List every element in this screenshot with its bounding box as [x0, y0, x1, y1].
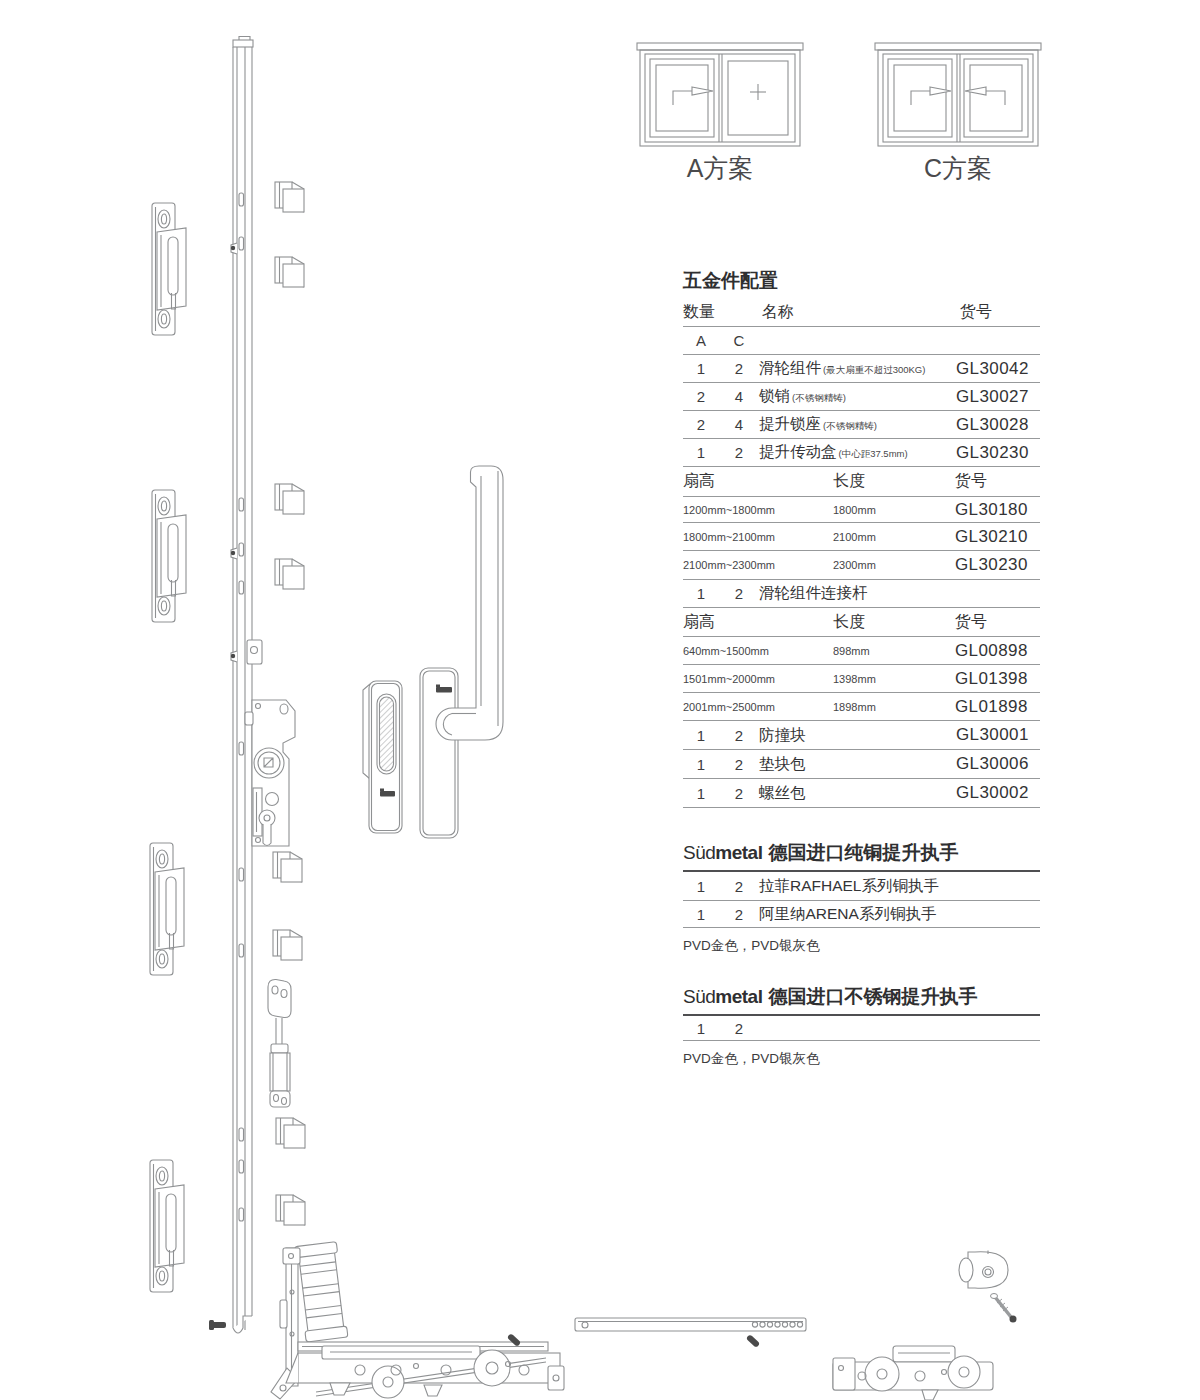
- qty-a: 2: [683, 416, 719, 433]
- table-row: 1 2 垫块包 GL30006: [683, 750, 1040, 779]
- part-name: 螺丝包: [759, 783, 956, 804]
- qty-c: 2: [719, 756, 759, 773]
- col-name: 名称: [762, 302, 960, 323]
- finish-options: PVD金色，PVD银灰色: [683, 937, 1040, 955]
- sash-range: 2100mm~2300mm: [683, 559, 833, 571]
- arrow-right-icon: [673, 87, 713, 105]
- scheme-c-diagram: [875, 43, 1041, 146]
- steel-handle-section: Südmetal德国进口不锈钢提升执手 1 2 PVD金色，PVD银灰色: [683, 984, 1040, 1068]
- table-row: 1 2 阿里纳ARENA系列铜执手: [683, 901, 1040, 928]
- part-name: 垫块包: [759, 754, 956, 775]
- qty-a: 2: [683, 388, 719, 405]
- col-length: 长度: [833, 612, 955, 633]
- part-code: GL30001: [956, 725, 1040, 745]
- brand-logo-metal: metal: [715, 986, 762, 1007]
- table-row: 1 2 滑轮组件(最大扇重不超过300KG) GL30042: [683, 355, 1040, 383]
- lift-handle-drawing: [420, 466, 503, 838]
- flush-pull-drawing: [363, 681, 402, 833]
- rail-length: 2300mm: [833, 559, 955, 571]
- strike-plate-drawing: [152, 490, 186, 622]
- size-row: 2001mm~2500mm 1898mm GL01898: [683, 693, 1040, 721]
- col-code: 货号: [960, 302, 1040, 323]
- brand-logo-sud: Süd: [683, 842, 715, 863]
- part-code: GL30210: [955, 527, 1040, 547]
- scheme-a-diagram: [637, 43, 803, 146]
- qty-a: 1: [683, 727, 719, 744]
- variant-a: A: [683, 332, 719, 349]
- part-code: GL30027: [956, 387, 1040, 407]
- col-length: 长度: [833, 471, 955, 492]
- part-code: GL30230: [955, 555, 1040, 575]
- part-name: 提升传动盒(中心距37.5mm): [759, 442, 956, 463]
- part-code: GL30028: [956, 415, 1040, 435]
- corner-guide-drawing: [295, 1242, 348, 1342]
- lock-pin-block-drawing: [276, 1195, 305, 1225]
- finish-options: PVD金色，PVD银灰色: [683, 1050, 1040, 1068]
- brass-handle-section: Südmetal德国进口纯铜提升执手 1 2 拉菲RAFHAEL系列铜执手 1 …: [683, 840, 1040, 955]
- part-code: GL30180: [955, 500, 1040, 520]
- table-row: 2 4 提升锁座(不锈钢精铸) GL30028: [683, 411, 1040, 439]
- table-row: 1 2 拉菲RAFHAEL系列铜执手: [683, 872, 1040, 901]
- part-code: GL01398: [955, 669, 1040, 689]
- arrow-right-icon: [911, 87, 951, 105]
- qty-c: 2: [719, 360, 759, 377]
- part-code: GL00898: [955, 641, 1040, 661]
- lock-pin-block-drawing: [275, 182, 304, 212]
- brand-logo-metal: metal: [715, 842, 762, 863]
- size-row: 1200mm~1800mm 1800mm GL30180: [683, 497, 1040, 523]
- table-row: 1 2 螺丝包 GL30002: [683, 779, 1040, 808]
- lock-pin-block-drawing: [275, 257, 304, 287]
- col-qty: 数量: [683, 302, 762, 323]
- part-note: (不锈钢精铸): [823, 420, 877, 431]
- qty-c: 2: [719, 585, 759, 602]
- size-row: 2100mm~2300mm 2300mm GL30230: [683, 551, 1040, 580]
- part-code: GL30006: [956, 754, 1040, 774]
- sash-range: 1501mm~2000mm: [683, 673, 833, 685]
- qty-a: 1: [683, 585, 719, 602]
- gas-strut-link-drawing: [268, 979, 291, 1107]
- lock-pin-block-drawing: [273, 930, 302, 960]
- table-title: 五金件配置: [683, 268, 1040, 298]
- table-row: 1 2 滑轮组件连接杆: [683, 580, 1040, 608]
- part-name: 锁销(不锈钢精铸): [759, 386, 956, 407]
- col-sash-height: 扇高: [683, 612, 833, 633]
- black-pin-icon: [209, 1320, 226, 1330]
- col-code: 货号: [955, 471, 1040, 492]
- rail-length: 898mm: [833, 645, 955, 657]
- table-row: 2 4 锁销(不锈钢精铸) GL30027: [683, 383, 1040, 411]
- qty-a: 1: [683, 1020, 719, 1037]
- part-note: (不锈钢精铸): [792, 392, 846, 403]
- col-sash-height: 扇高: [683, 471, 833, 492]
- lift-gearbox-drawing: [245, 700, 295, 846]
- black-pin-icon: [746, 1334, 760, 1348]
- qty-c: 2: [719, 906, 759, 923]
- rail-length: 1800mm: [833, 504, 955, 516]
- qty-c: 4: [719, 416, 759, 433]
- strike-plate-drawing: [150, 843, 184, 975]
- qty-c: 2: [719, 878, 759, 895]
- part-note: (最大扇重不超过300KG): [823, 364, 925, 375]
- part-name: 滑轮组件连接杆: [759, 583, 956, 604]
- catalog-page: { "colors":{"line":"#8f9193","text":"#3f…: [0, 0, 1200, 1400]
- qty-c: 4: [719, 388, 759, 405]
- part-name-text: 提升传动盒: [759, 443, 837, 460]
- arrow-left-icon: [965, 87, 1005, 105]
- rail-length: 1898mm: [833, 701, 955, 713]
- variant-c: C: [719, 332, 759, 349]
- part-name-text: 锁销: [759, 387, 790, 404]
- brand-logo-sud: Süd: [683, 986, 715, 1007]
- qty-a: 1: [683, 444, 719, 461]
- part-name: 阿里纳ARENA系列铜执手: [759, 904, 956, 925]
- table-row: 1 2 防撞块 GL30001: [683, 721, 1040, 750]
- part-name: 滑轮组件(最大扇重不超过300KG): [759, 358, 956, 379]
- qty-c: 2: [719, 1020, 759, 1037]
- table-row: 1 2 提升传动盒(中心距37.5mm) GL30230: [683, 439, 1040, 467]
- qty-a: 1: [683, 906, 719, 923]
- rail-length: 1398mm: [833, 673, 955, 685]
- hardware-config-table: 五金件配置 数量 名称 货号 A C 1 2 滑轮组件(最大扇重不超过300KG…: [683, 268, 1040, 808]
- subheader-row: 扇高 长度 货号: [683, 608, 1040, 637]
- size-row: 1501mm~2000mm 1398mm GL01398: [683, 665, 1040, 693]
- qty-c: 2: [719, 785, 759, 802]
- scheme-a-label: A方案: [640, 152, 800, 185]
- part-name-text: 滑轮组件: [759, 359, 821, 376]
- qty-c: 2: [719, 727, 759, 744]
- plus-icon: [750, 84, 766, 100]
- brass-title-text: 德国进口纯铜提升执手: [768, 842, 958, 863]
- qty-a: 1: [683, 878, 719, 895]
- lock-pin-block-drawing: [275, 559, 304, 589]
- part-name-text: 提升锁座: [759, 415, 821, 432]
- lock-pin-block-drawing: [273, 852, 302, 882]
- part-note: (中心距37.5mm): [839, 448, 908, 459]
- qty-a: 1: [683, 360, 719, 377]
- part-code: GL01898: [955, 697, 1040, 717]
- qty-c: 2: [719, 444, 759, 461]
- sash-range: 1800mm~2100mm: [683, 531, 833, 543]
- sliding-sash: [650, 59, 714, 137]
- subheader-row: 扇高 长度 货号: [683, 467, 1040, 497]
- strike-plate-drawing: [150, 1160, 184, 1292]
- sash-range: 2001mm~2500mm: [683, 701, 833, 713]
- lock-rail-drawing: [209, 37, 262, 1334]
- part-name: 拉菲RAFHAEL系列铜执手: [759, 876, 956, 897]
- sash-range: 640mm~1500mm: [683, 645, 833, 657]
- size-row: 640mm~1500mm 898mm GL00898: [683, 637, 1040, 665]
- variant-row: A C: [683, 327, 1040, 355]
- lock-pin-block-drawing: [276, 1118, 305, 1148]
- connection-rod-drawing: [575, 1318, 806, 1331]
- part-name: 防撞块: [759, 725, 956, 746]
- table-header-row: 数量 名称 货号: [683, 298, 1040, 327]
- lock-pin-block-drawing: [275, 484, 304, 514]
- sliding-sash: [888, 59, 952, 137]
- steel-section-title: Südmetal德国进口不锈钢提升执手: [683, 984, 1040, 1016]
- anti-collision-block-drawing: [959, 1251, 1008, 1289]
- sash-range: 1200mm~1800mm: [683, 504, 833, 516]
- strike-plate-drawing: [152, 203, 186, 335]
- col-code: 货号: [955, 612, 1040, 633]
- size-row: 1800mm~2100mm 2100mm GL30210: [683, 523, 1040, 551]
- qty-a: 1: [683, 785, 719, 802]
- steel-title-text: 德国进口不锈钢提升执手: [768, 986, 977, 1007]
- roller-bogie-drawing: [833, 1346, 993, 1400]
- qty-a: 1: [683, 756, 719, 773]
- part-code: GL30230: [956, 443, 1040, 463]
- sliding-sash: [964, 59, 1028, 137]
- part-code: GL30042: [956, 359, 1040, 379]
- brass-section-title: Südmetal德国进口纯铜提升执手: [683, 840, 1040, 872]
- part-code: GL30002: [956, 783, 1040, 803]
- screw-drawing: [991, 1294, 1017, 1323]
- table-row: 1 2: [683, 1016, 1040, 1041]
- part-name: 提升锁座(不锈钢精铸): [759, 414, 956, 435]
- scheme-c-label: C方案: [878, 152, 1038, 185]
- rail-length: 2100mm: [833, 531, 955, 543]
